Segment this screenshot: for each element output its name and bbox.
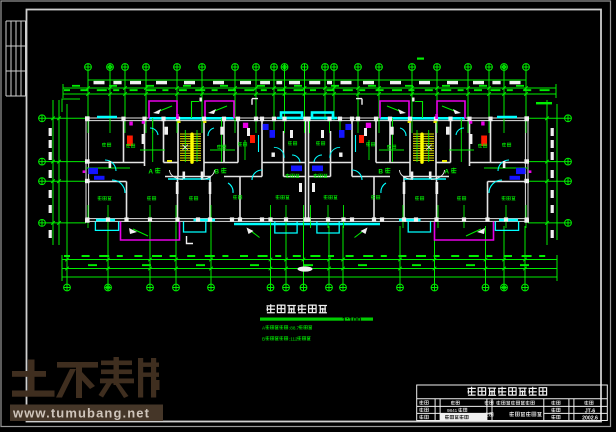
svg-text:2002.6: 2002.6 [582,416,598,422]
svg-text:B: B [214,169,219,176]
svg-text::88.7: :88.7 [289,325,300,330]
svg-text:A: A [444,169,449,176]
svg-text:1:100: 1:100 [342,315,361,324]
svg-text:9841: 9841 [447,408,458,413]
svg-text:B: B [378,169,383,176]
svg-text:JT-6: JT-6 [585,408,595,414]
svg-text::112: :112 [289,336,298,341]
svg-text:A: A [148,169,153,176]
svg-text:www.tumubang.net: www.tumubang.net [12,406,150,421]
svg-text:B: B [262,336,265,341]
